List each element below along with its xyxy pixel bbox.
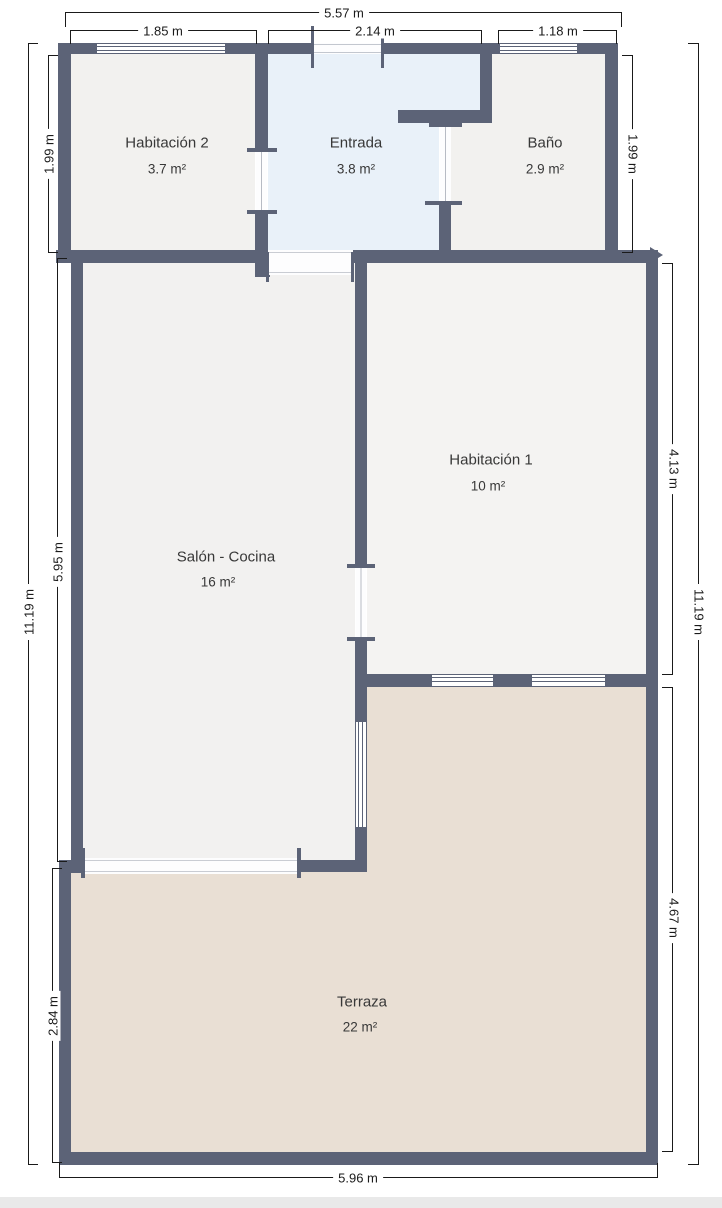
room-area-salon: 16 m² [201,575,236,590]
wall-left-top-section [58,43,71,263]
room-floor-entrada [268,54,480,114]
wall-right-exterior [646,250,658,1165]
dim-label-left-top: 1.99 m [42,129,57,179]
wall-bano-lower-vertical [439,205,451,250]
dim-label-top-entrada: 2.14 m [350,24,400,39]
dim-label-left-bottom: 2.84 m [46,991,61,1041]
dimension-tick [481,30,482,44]
door-hab2 [256,152,267,210]
room-label-bano: Baño [527,135,562,152]
dim-label-right-terraza: 4.67 m [667,893,682,943]
dim-label-left-total: 11.19 m [22,584,37,640]
dimension-tick [498,30,499,44]
room-floor-hab1 [367,263,646,674]
entrance-arrow-icon [650,247,663,263]
dimension-tick [57,861,67,862]
dimension-tick [48,252,58,253]
wall-salon-left-exterior [71,250,83,863]
dimension-tick [65,12,66,27]
room-area-hab2: 3.7 m² [148,162,186,177]
dimension-tick [657,1163,658,1178]
room-label-hab2: Habitación 2 [125,135,208,152]
dimension-tick [52,868,62,869]
wall-hab2-entrada-lower [255,214,268,250]
room-label-hab1: Habitación 1 [449,452,532,469]
wall-hab2-entrada-upper [255,54,268,148]
dim-label-left-middle: 5.95 m [51,537,66,587]
door-jamb [81,848,85,878]
room-label-terraza: Terraza [337,994,387,1011]
wall-bano-upper-vertical [480,54,492,110]
door-jamb [297,848,301,878]
window-hab2 [97,44,225,53]
dim-label-right-top: 1.99 m [626,129,641,179]
door-jamb [247,148,277,152]
window-salon-terraza [356,722,366,827]
wall-mid-horizontal-left [56,250,268,263]
dimension-tick [28,43,38,44]
room-label-entrada: Entrada [330,135,383,152]
door-jamb [311,26,314,68]
opening-entrada-salon [268,250,353,275]
room-floor-terraza-upper [367,687,646,872]
wall-bano-stub-horizontal [398,110,492,123]
room-area-terraza: 22 m² [343,1020,378,1035]
window-hab1-terraza-2 [532,675,605,686]
door-jamb [347,637,375,641]
dimension-tick [616,30,617,44]
door-entrada-main [313,43,382,54]
dimension-tick [70,30,71,44]
dimension-tick [622,252,632,253]
window-hab1-terraza-1 [432,675,493,686]
dim-label-top-hab2: 1.85 m [138,24,188,39]
wall-salon-hab1-upper [355,250,367,565]
door-jamb [247,210,277,214]
dimension-tick [622,55,632,56]
dim-label-top-total: 5.57 m [319,6,369,21]
door-jamb [429,123,462,127]
dimension-tick [48,55,58,56]
dimension-tick [688,43,698,44]
room-floor-terraza [71,872,646,1152]
dimension-tick [662,263,672,264]
wall-hab1-terraza [355,674,658,687]
room-area-bano: 2.9 m² [526,162,564,177]
room-floor-bano [492,54,605,114]
room-area-hab1: 10 m² [471,479,506,494]
door-jamb [425,201,462,205]
window-bano [500,44,577,53]
floor-plan: 5.57 m 1.85 m 2.14 m 1.18 m 11.19 m 1.99… [0,0,722,1208]
dimension-tick [256,30,257,44]
dimension-tick [52,1162,62,1163]
door-jamb [266,252,269,282]
dimension-tick [28,1164,38,1165]
dimension-tick [688,1164,698,1165]
wall-salon-south-segment [300,860,367,872]
dimension-tick [59,1163,60,1178]
door-jamb [347,564,375,568]
door-jamb [351,252,354,282]
dimension-tick [662,687,672,688]
dimension-tick [662,674,672,675]
dimension-tick [268,30,269,44]
opening-salon-terraza [85,858,298,874]
dimension-tick [662,1151,672,1152]
dimension-tick [621,12,622,27]
room-floor-hab2 [71,54,255,250]
wall-right-top-section [605,43,618,263]
dimension-tick [57,258,67,259]
door-bano [440,127,451,201]
dim-label-bottom-total: 5.96 m [333,1171,383,1186]
room-area-entrada: 3.8 m² [337,162,375,177]
footer-strip [0,1197,722,1208]
wall-mid-horizontal-right [353,250,658,263]
room-label-salon: Salón - Cocina [177,549,275,566]
wall-bottom-exterior [59,1152,658,1165]
wall-terraza-left-exterior [59,868,71,1165]
dim-label-top-bano: 1.18 m [533,24,583,39]
dim-label-right-total: 11.19 m [692,584,707,640]
door-salon-hab1 [356,568,366,637]
dim-label-right-hab1: 4.13 m [667,444,682,494]
